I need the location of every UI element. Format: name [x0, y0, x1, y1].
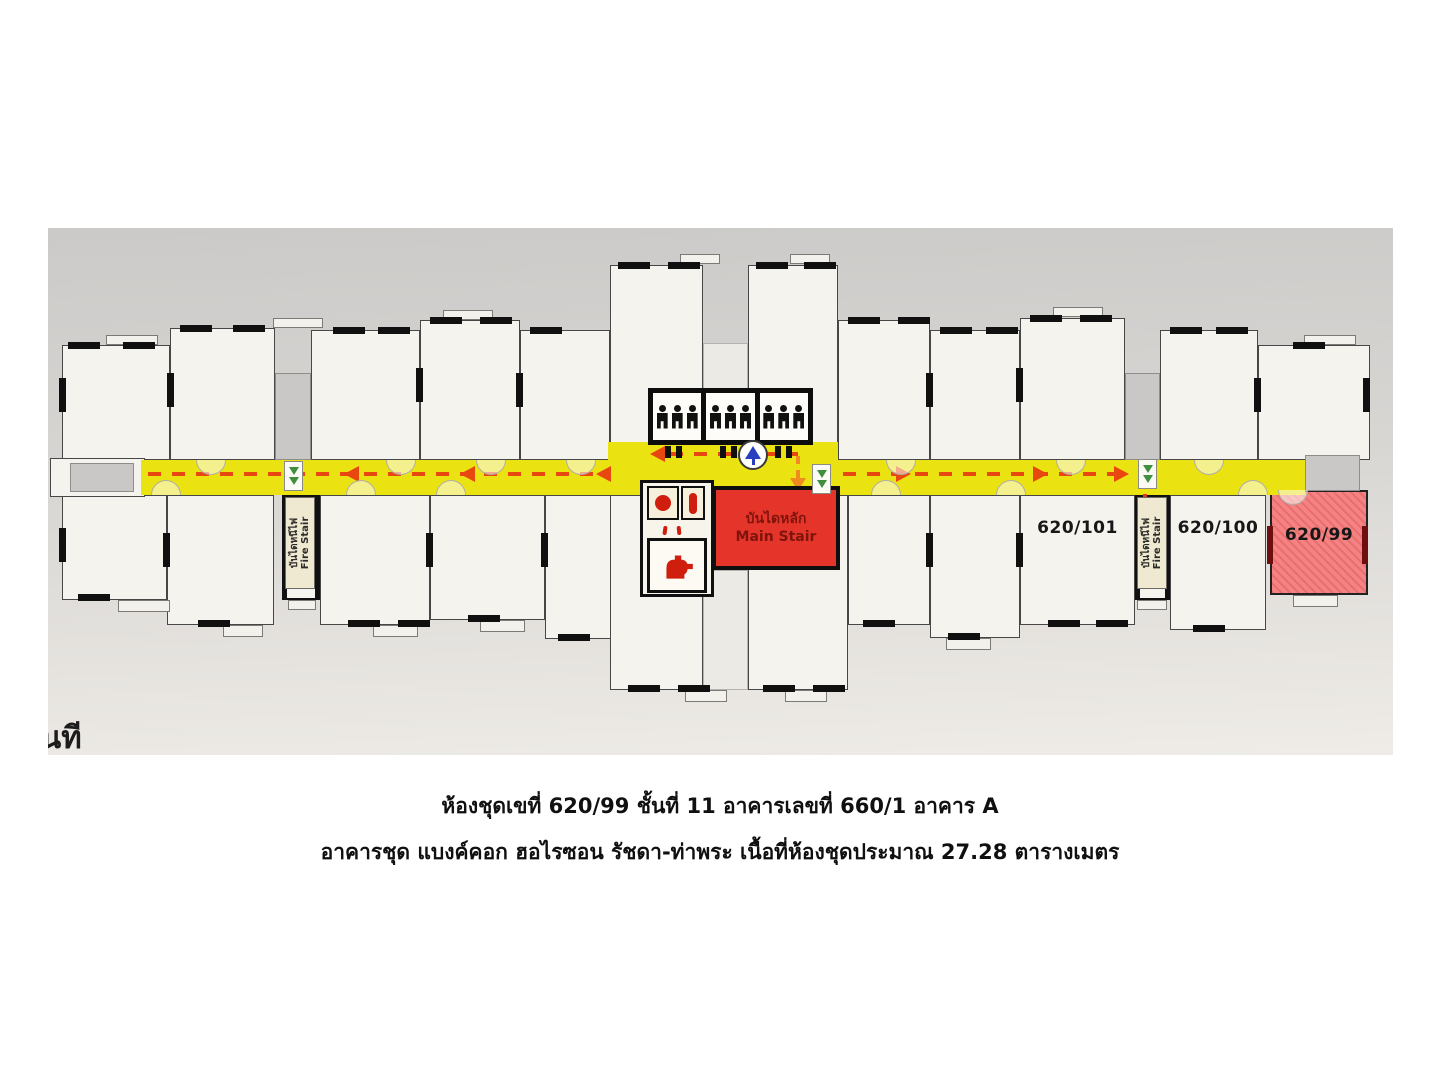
floor-plan: บันไดหลัก Main Stair	[48, 228, 1393, 755]
window-bar	[558, 634, 590, 641]
fire-equipment-room	[640, 480, 714, 597]
window-bar	[678, 685, 710, 692]
unit-room	[62, 345, 170, 460]
window-bar	[1293, 342, 1325, 349]
window-bar	[1080, 315, 1112, 322]
unit-room	[545, 495, 615, 639]
window-bar	[926, 533, 933, 567]
elevator-person-icon	[763, 405, 774, 429]
window-bar	[426, 533, 433, 567]
unit-room	[311, 330, 420, 460]
window-bar	[756, 262, 788, 269]
window-bar	[1170, 327, 1202, 334]
route-arrowhead-icon	[1033, 466, 1048, 482]
exit-arrow-down-icon	[817, 480, 827, 488]
balcony	[273, 318, 323, 328]
elevator-car	[653, 393, 701, 440]
window-bar	[1048, 620, 1080, 627]
window-bar	[1254, 378, 1261, 412]
elevator-person-icon	[657, 405, 668, 429]
window-bar	[1016, 533, 1023, 567]
window-bar	[516, 373, 523, 407]
window-bar	[1193, 625, 1225, 632]
window-bar	[863, 620, 895, 627]
elevator-door-mark	[775, 446, 781, 458]
elevator-door-mark	[665, 446, 671, 458]
window-bar	[940, 327, 972, 334]
window-bar	[763, 685, 795, 692]
unit-room	[170, 328, 275, 460]
window-bar	[668, 262, 700, 269]
unit-label-620-100: 620/100	[1170, 518, 1266, 538]
window-bar	[1216, 327, 1248, 334]
route-arrowhead-icon	[596, 466, 611, 482]
balcony	[288, 600, 316, 610]
exit-arrow-down-icon	[289, 467, 299, 475]
unit-room	[62, 495, 167, 600]
window-bar	[59, 378, 66, 412]
window-bar	[163, 533, 170, 567]
unit-label-620-101: 620/101	[1020, 518, 1135, 538]
vestibule	[1305, 455, 1360, 491]
window-bar	[530, 327, 562, 334]
fire-stair-label: บันไดหนีไฟ Fire Stair	[1137, 497, 1167, 589]
window-bar	[480, 317, 512, 324]
unit-room	[930, 330, 1020, 460]
window-bar	[1096, 620, 1128, 627]
unit-room	[848, 495, 930, 625]
vestibule	[70, 463, 134, 492]
route-arrowhead-icon	[1114, 466, 1129, 482]
window-bar	[628, 685, 660, 692]
window-bar	[1030, 315, 1062, 322]
evacuation-route-east	[843, 472, 1131, 476]
partial-text: นที	[48, 712, 82, 755]
main-stair: บันไดหลัก Main Stair	[712, 486, 840, 570]
window-bar	[348, 620, 380, 627]
exit-arrow-tile	[284, 461, 303, 491]
flame-icon	[677, 526, 682, 535]
unit-room	[1020, 318, 1125, 460]
exit-arrow-tile	[1138, 459, 1157, 489]
window-bar	[986, 327, 1018, 334]
exit-arrow-down-icon	[1143, 475, 1153, 483]
balcony	[1137, 600, 1167, 610]
window-bar	[378, 327, 410, 334]
fire-stair-label: บันไดหนีไฟ Fire Stair	[285, 497, 315, 589]
vestibule	[275, 373, 311, 460]
elevator-car	[701, 393, 754, 440]
fire-stair-label-thai: บันไดหนีไฟ	[289, 518, 301, 568]
window-bar	[618, 262, 650, 269]
unit-room	[320, 495, 430, 625]
page: บันไดหลัก Main Stair	[0, 0, 1440, 1080]
balcony	[118, 600, 170, 612]
exit-arrow-down-icon	[1143, 465, 1153, 473]
elevator-door-mark	[786, 446, 792, 458]
exit-arrow-tile	[812, 464, 831, 494]
elevator-person-icon	[672, 405, 683, 429]
window-bar	[59, 528, 66, 562]
window-bar	[1363, 378, 1370, 412]
window-bar	[416, 368, 423, 402]
window-bar	[167, 373, 174, 407]
fire-alarm-icon	[655, 495, 671, 511]
unit-room	[167, 495, 274, 625]
window-bar	[541, 533, 548, 567]
window-bar	[198, 620, 230, 627]
unit-room	[930, 495, 1020, 638]
unit-label-620-99: 620/99	[1270, 525, 1368, 545]
vestibule	[1125, 373, 1160, 460]
elevator-person-icon	[778, 405, 789, 429]
caption-line-2: อาคารชุด แบงค์คอก ฮอไรซอน รัชดา-ท่าพระ เ…	[0, 836, 1440, 869]
route-arrowhead-icon	[460, 466, 475, 482]
window-bar	[123, 342, 155, 349]
fire-stair-label-en: Fire Stair	[1152, 517, 1164, 570]
unit-room	[1160, 330, 1258, 460]
exit-arrow-down-icon	[817, 470, 827, 478]
balcony	[1293, 595, 1338, 607]
window-bar	[804, 262, 836, 269]
unit-620-100	[1170, 495, 1266, 630]
unit-620-101	[1020, 495, 1135, 625]
fire-stair-label-thai: บันไดหนีไฟ	[1141, 518, 1153, 568]
north-arrow-icon	[738, 440, 768, 470]
caption-line-1: ห้องชุดเขที่ 620/99 ชั้นที่ 11 อาคารเลขท…	[0, 790, 1440, 823]
window-bar	[430, 317, 462, 324]
fire-hose-icon	[658, 547, 696, 585]
elevator-door-mark	[720, 446, 726, 458]
elevator-person-icon	[725, 405, 736, 429]
window-bar	[180, 325, 212, 332]
main-stair-label-thai: บันไดหลัก	[746, 510, 807, 528]
fire-stair-label-en: Fire Stair	[300, 517, 312, 570]
elevator-person-icon	[687, 405, 698, 429]
elevator-person-icon	[710, 405, 721, 429]
floorplan-photo: บันไดหลัก Main Stair	[48, 228, 1393, 755]
elevator-person-icon	[740, 405, 751, 429]
flame-icon	[662, 526, 667, 535]
window-bar	[333, 327, 365, 334]
unit-room	[420, 320, 520, 460]
window-bar	[233, 325, 265, 332]
window-bar	[926, 373, 933, 407]
window-bar	[848, 317, 880, 324]
fire-extinguisher-icon	[689, 493, 697, 514]
elevator-bank	[648, 388, 813, 445]
unit-room	[430, 495, 545, 620]
main-stair-label-en: Main Stair	[736, 528, 817, 546]
elevator-door-mark	[731, 446, 737, 458]
elevator-car	[755, 393, 808, 440]
caption: ห้องชุดเขที่ 620/99 ชั้นที่ 11 อาคารเลขท…	[0, 790, 1440, 869]
route-turn-down	[796, 456, 800, 480]
window-bar	[68, 342, 100, 349]
window-bar	[813, 685, 845, 692]
window-bar	[948, 633, 980, 640]
window-bar	[398, 620, 430, 627]
window-bar	[78, 594, 110, 601]
elevator-door-mark	[676, 446, 682, 458]
exit-arrow-down-icon	[289, 477, 299, 485]
elevator-person-icon	[793, 405, 804, 429]
window-bar	[898, 317, 930, 324]
window-bar	[1016, 368, 1023, 402]
unit-room	[520, 330, 610, 460]
window-bar	[468, 615, 500, 622]
unit-room	[1258, 345, 1370, 460]
route-arrowhead-icon	[650, 446, 665, 462]
unit-room	[838, 320, 930, 460]
